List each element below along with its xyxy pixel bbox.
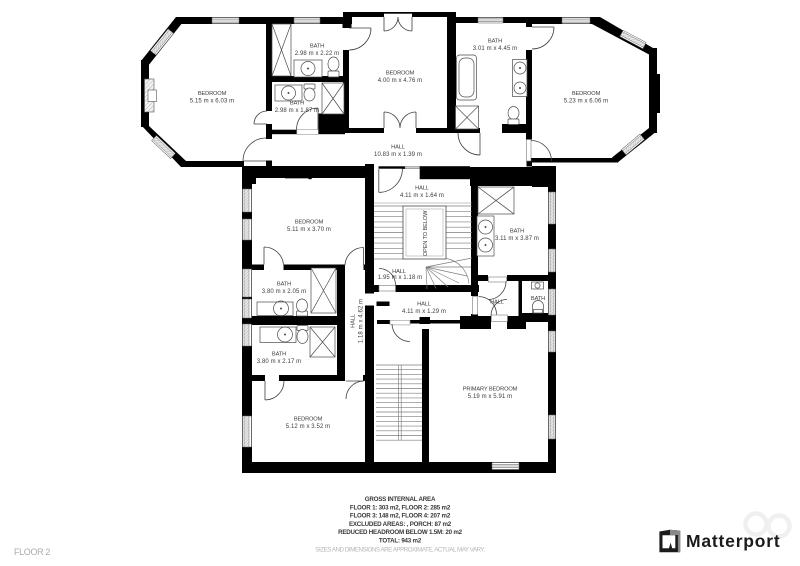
svg-text:SIZES AND DIMENSIONS ARE APPRO: SIZES AND DIMENSIONS ARE APPROXIMATE, AC… [315, 547, 485, 554]
svg-text:10.83 m x 1.39 m: 10.83 m x 1.39 m [374, 152, 422, 158]
svg-text:EXCLUDED AREAS: , PORCH: 87 m2: EXCLUDED AREAS: , PORCH: 87 m2 [349, 521, 452, 528]
svg-text:FLOOR 2: FLOOR 2 [14, 547, 50, 557]
svg-text:3.80 m x 2.17 m: 3.80 m x 2.17 m [257, 359, 302, 365]
svg-text:BEDROOM: BEDROOM [295, 220, 324, 226]
svg-text:BATH: BATH [488, 39, 502, 45]
svg-text:PRIMARY BEDROOM: PRIMARY BEDROOM [463, 387, 518, 393]
svg-text:OPEN TO BELOW: OPEN TO BELOW [423, 210, 429, 256]
svg-text:1.95 m x 1.18 m: 1.95 m x 1.18 m [378, 275, 423, 281]
svg-text:5.19 m x 5.91 m: 5.19 m x 5.91 m [468, 394, 513, 400]
svg-text:4.11 m x 1.64 m: 4.11 m x 1.64 m [400, 193, 444, 199]
svg-text:BATH: BATH [290, 101, 304, 107]
svg-text:BATH: BATH [531, 296, 545, 302]
svg-text:TOTAL: 943 m2: TOTAL: 943 m2 [379, 538, 422, 545]
svg-text:HALL: HALL [415, 186, 429, 192]
svg-text:2.98 m x 2.22 m: 2.98 m x 2.22 m [295, 51, 340, 57]
svg-text:3.80 m x 2.05 m: 3.80 m x 2.05 m [262, 289, 307, 295]
svg-text:5.15 m x 6.03 m: 5.15 m x 6.03 m [190, 98, 235, 104]
svg-text:FLOOR 3: 148 m2, FLOOR 4: 207: FLOOR 3: 148 m2, FLOOR 4: 207 m2 [350, 513, 451, 520]
svg-text:HALL: HALL [490, 300, 504, 306]
svg-text:HALL: HALL [351, 314, 357, 328]
svg-text:4.11 m x 1.29 m: 4.11 m x 1.29 m [402, 309, 446, 315]
svg-text:HALL: HALL [391, 145, 405, 151]
svg-text:BATH: BATH [277, 282, 291, 288]
svg-text:REDUCED HEADROOM BELOW 1.5M: 2: REDUCED HEADROOM BELOW 1.5M: 20 m2 [338, 529, 463, 536]
svg-text:5.23 m x 6.06 m: 5.23 m x 6.06 m [564, 98, 609, 104]
svg-text:5.11 m x 3.70 m: 5.11 m x 3.70 m [287, 227, 331, 233]
svg-text:BATH: BATH [310, 44, 324, 50]
svg-text:BEDROOM: BEDROOM [386, 71, 415, 77]
svg-text:HALL: HALL [417, 302, 431, 308]
svg-text:5.12 m x 3.52 m: 5.12 m x 3.52 m [286, 424, 331, 430]
svg-text:FLOOR 1: 303 m2, FLOOR 2: 285: FLOOR 1: 303 m2, FLOOR 2: 285 m2 [350, 504, 451, 511]
svg-text:1.18 m x 4.62 m: 1.18 m x 4.62 m [359, 299, 365, 344]
svg-text:BATH: BATH [510, 229, 524, 235]
svg-text:2.98 m x 1.87 m: 2.98 m x 1.87 m [275, 108, 320, 114]
svg-text:BEDROOM: BEDROOM [572, 91, 601, 97]
svg-text:Matterport: Matterport [686, 531, 781, 551]
svg-text:BATH: BATH [272, 352, 286, 358]
svg-text:4.00 m x 4.76 m: 4.00 m x 4.76 m [378, 78, 423, 84]
svg-text:GROSS INTERNAL AREA: GROSS INTERNAL AREA [365, 496, 436, 503]
svg-text:3.11 m x 3.87 m: 3.11 m x 3.87 m [495, 236, 539, 242]
svg-text:3.01 m x 4.45 m: 3.01 m x 4.45 m [473, 46, 518, 52]
svg-text:BEDROOM: BEDROOM [198, 91, 227, 97]
svg-text:BEDROOM: BEDROOM [294, 417, 323, 423]
